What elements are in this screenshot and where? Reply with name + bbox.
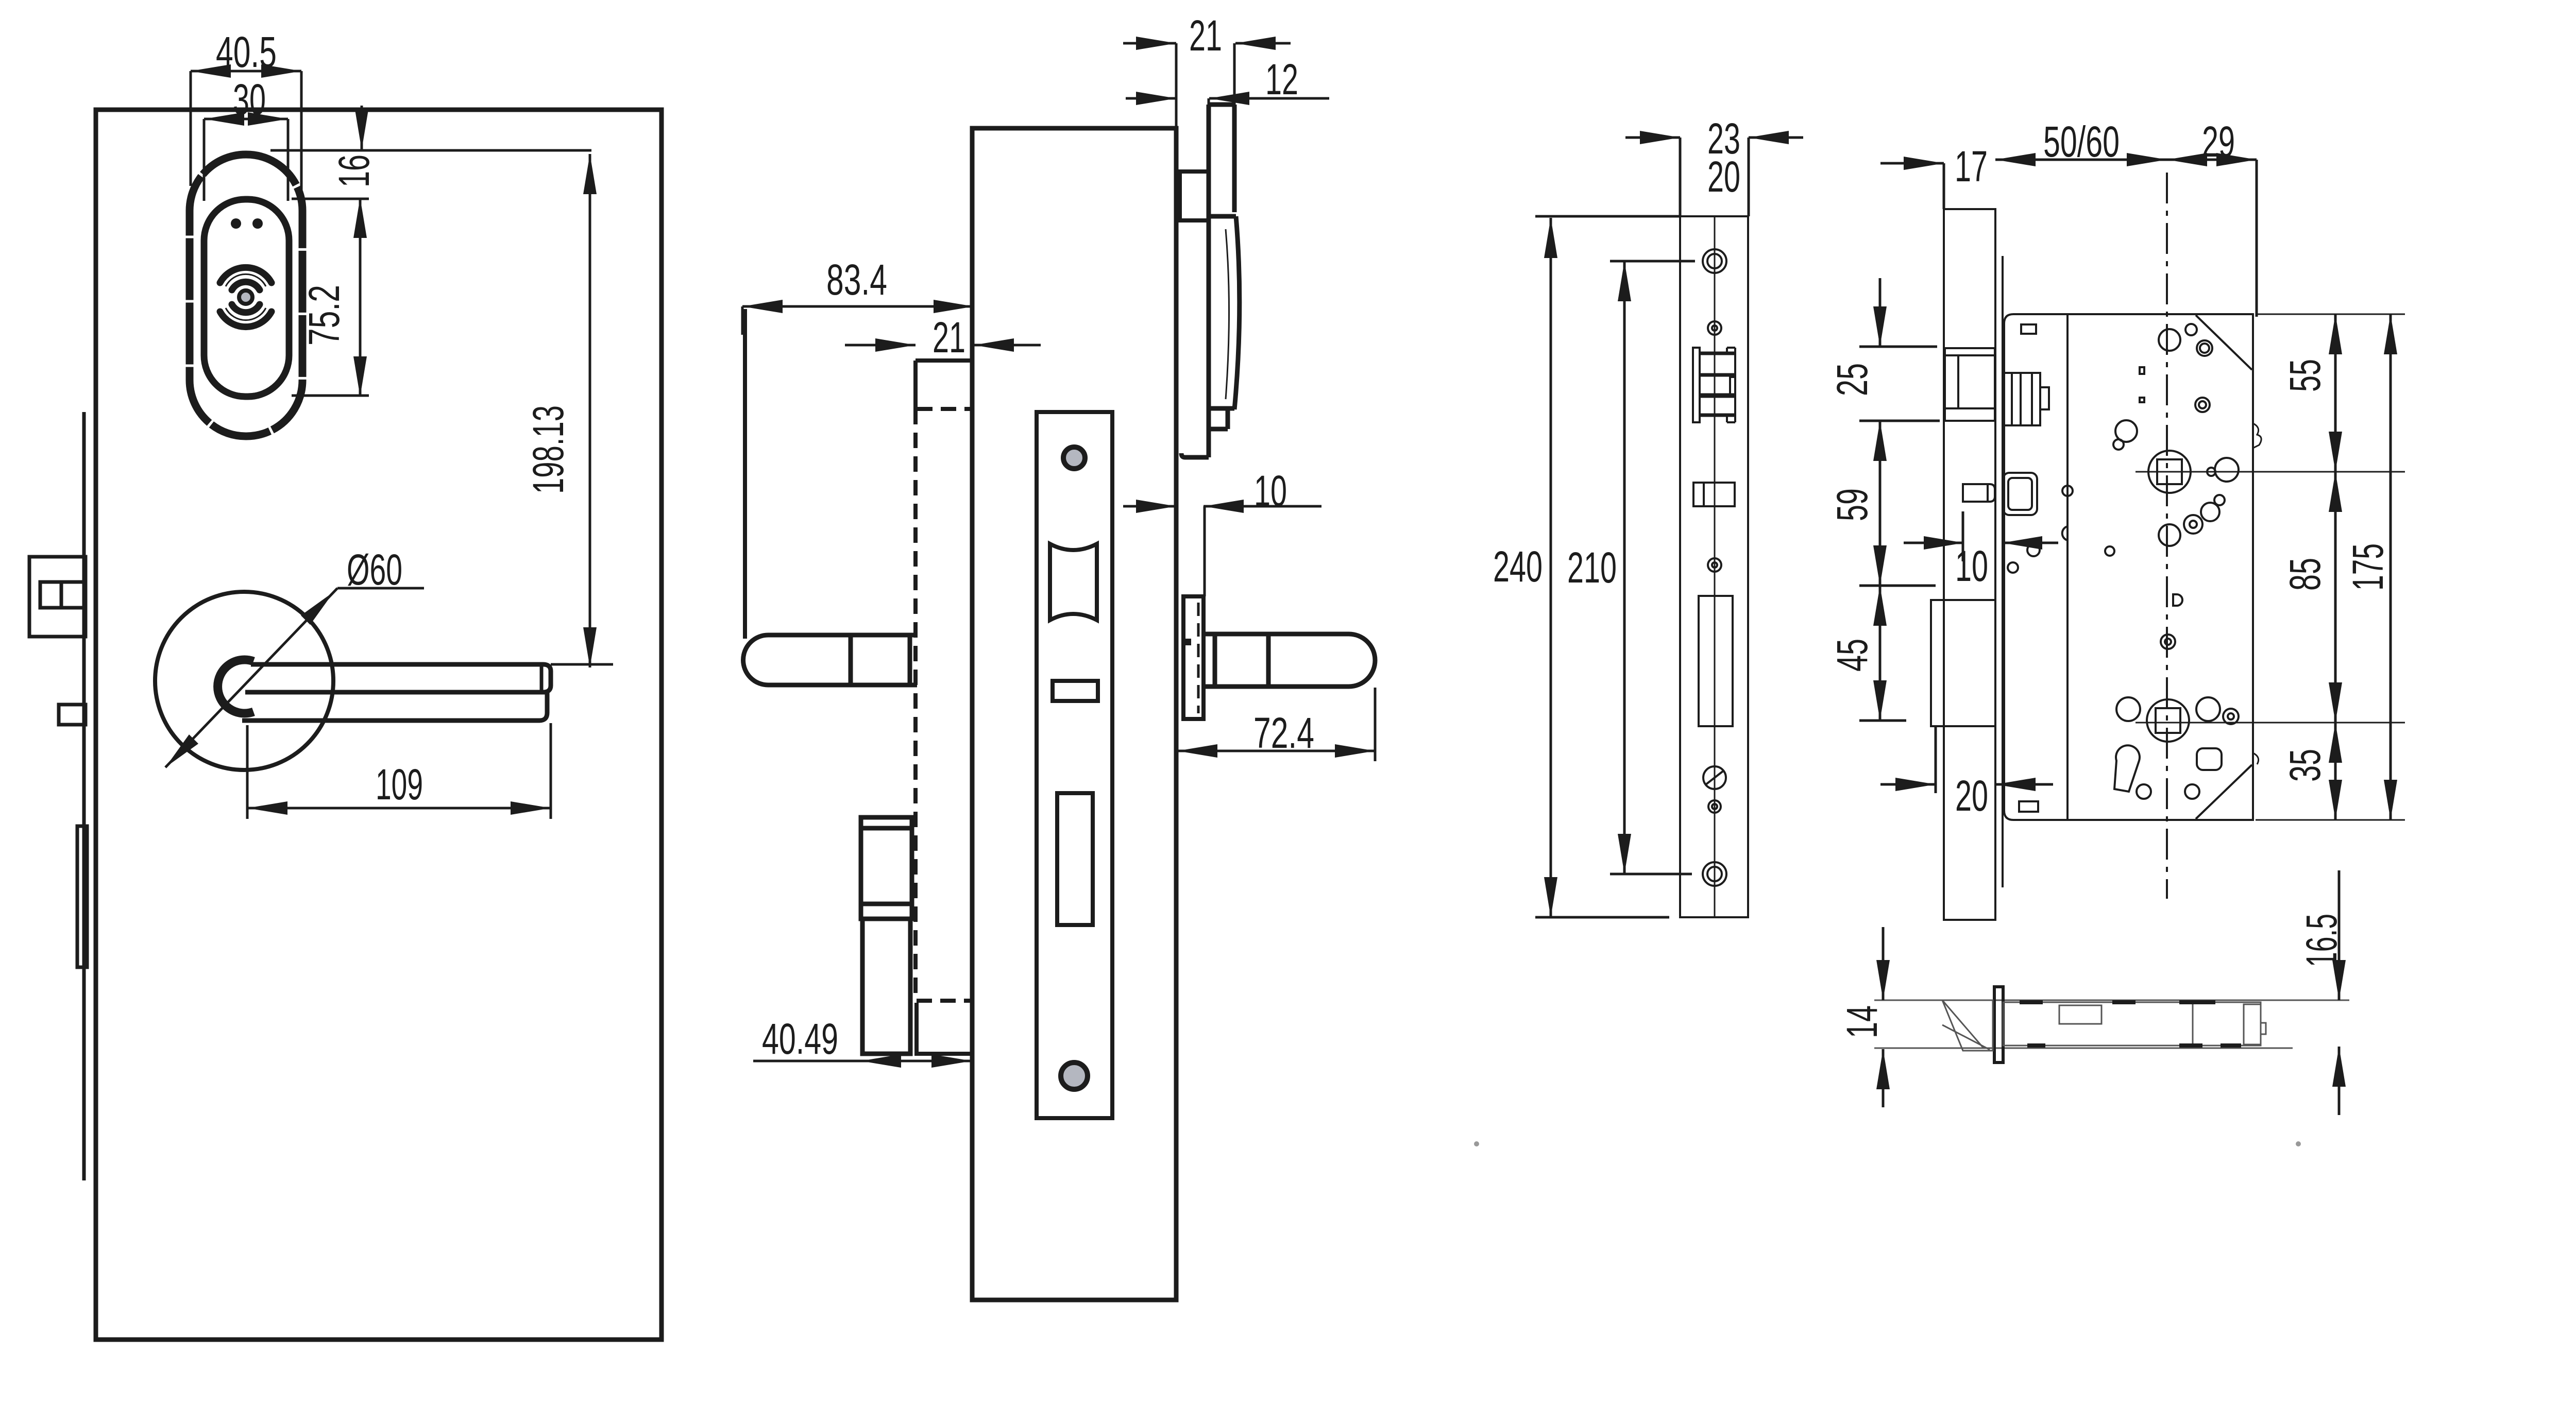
svg-text:72.4: 72.4 (1253, 709, 1314, 757)
svg-text:20: 20 (1955, 772, 1988, 820)
svg-text:25: 25 (1828, 363, 1876, 396)
svg-text:10: 10 (1955, 542, 1988, 590)
svg-text:59: 59 (1828, 488, 1876, 521)
svg-text:83.4: 83.4 (826, 255, 887, 304)
svg-text:40.5: 40.5 (216, 28, 277, 76)
svg-text:40.49: 40.49 (762, 1015, 838, 1063)
svg-text:21: 21 (1189, 11, 1222, 60)
svg-text:14: 14 (1838, 1005, 1886, 1038)
svg-text:75.2: 75.2 (300, 285, 348, 346)
svg-text:240: 240 (1493, 542, 1543, 591)
svg-text:16.5: 16.5 (2297, 914, 2346, 967)
svg-text:109: 109 (376, 760, 423, 809)
svg-text:12: 12 (1265, 55, 1298, 104)
svg-text:85: 85 (2281, 558, 2329, 591)
svg-text:175: 175 (2344, 543, 2392, 591)
svg-text:Ø60: Ø60 (347, 545, 402, 594)
svg-text:16: 16 (330, 155, 378, 187)
svg-text:10: 10 (1254, 467, 1287, 515)
svg-text:45: 45 (1828, 639, 1876, 672)
svg-text:30: 30 (233, 75, 266, 124)
svg-text:21: 21 (933, 313, 965, 362)
svg-text:55: 55 (2281, 359, 2329, 392)
svg-text:210: 210 (1567, 543, 1617, 592)
svg-text:50/60: 50/60 (2043, 117, 2120, 166)
svg-text:20: 20 (1707, 152, 1740, 201)
svg-text:198.13: 198.13 (524, 405, 572, 494)
svg-text:17: 17 (1955, 142, 1988, 191)
svg-text:35: 35 (2281, 749, 2329, 782)
svg-text:29: 29 (2202, 117, 2235, 166)
